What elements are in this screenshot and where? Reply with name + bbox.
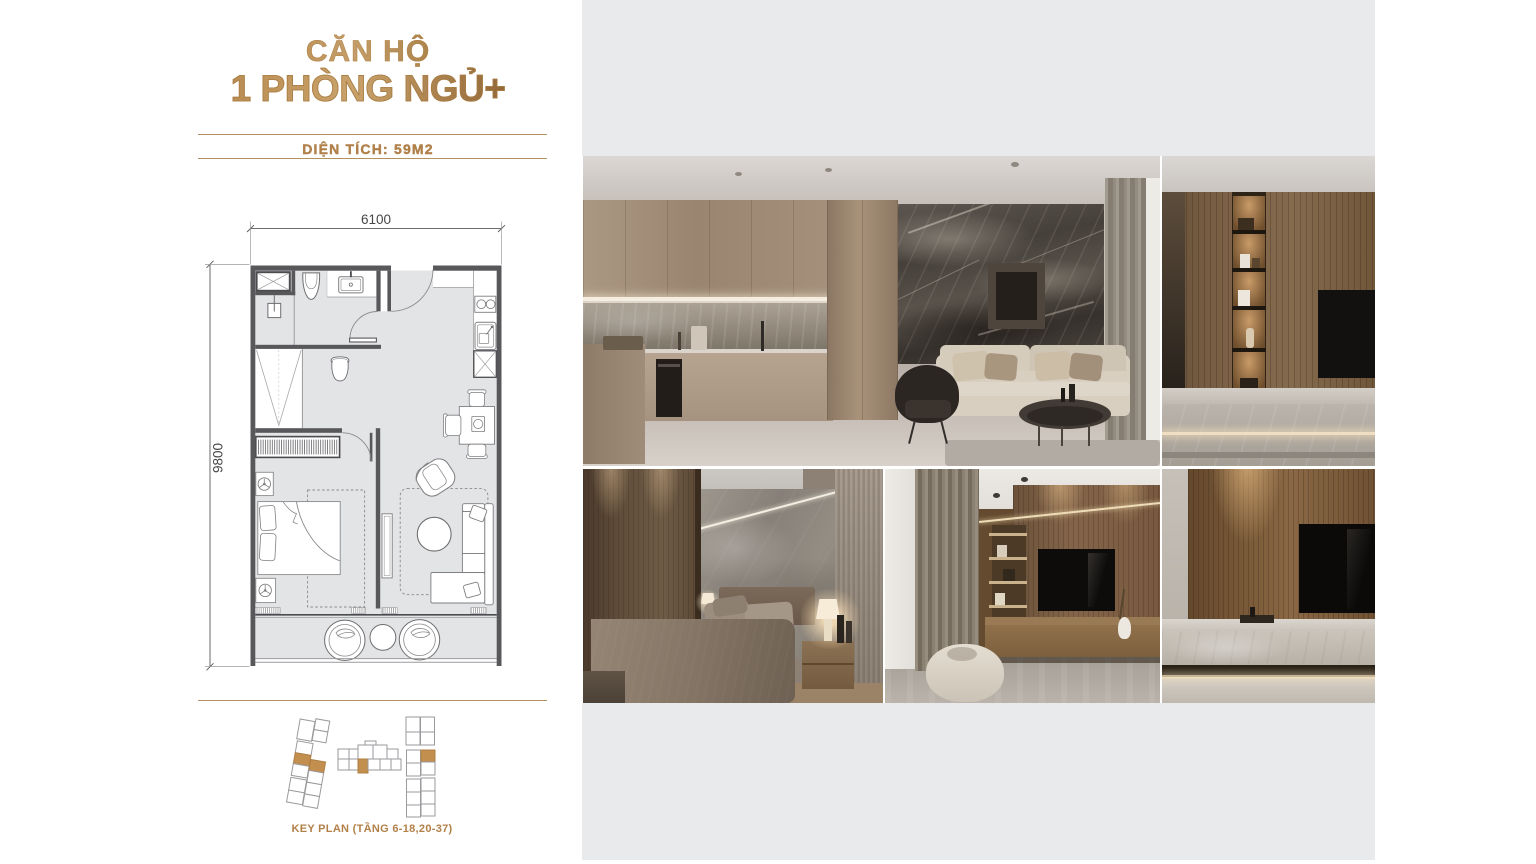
svg-text:6100: 6100 xyxy=(361,212,391,227)
svg-text:9800: 9800 xyxy=(211,443,226,473)
